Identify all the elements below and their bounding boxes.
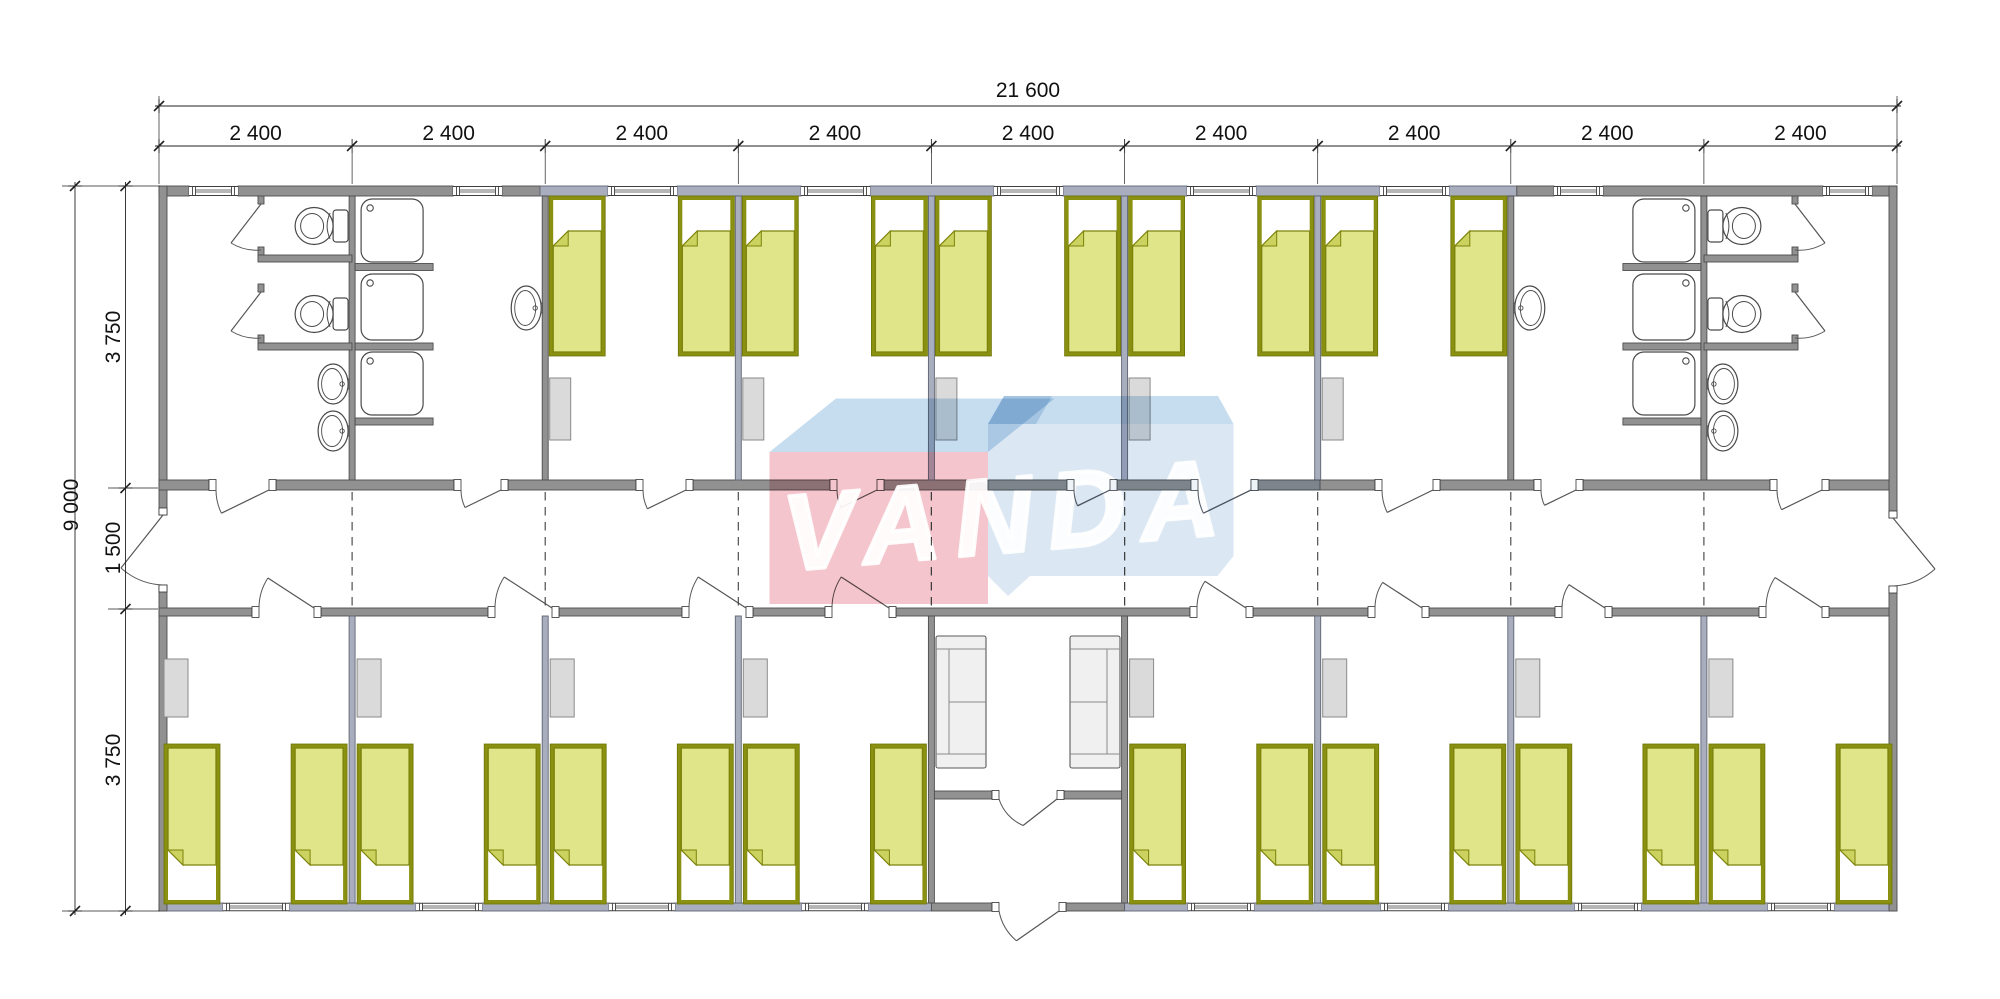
svg-text:3 750: 3 750 — [102, 311, 125, 364]
svg-text:1 500: 1 500 — [102, 522, 125, 575]
svg-text:2 400: 2 400 — [809, 122, 862, 145]
svg-text:3 750: 3 750 — [102, 734, 125, 787]
svg-text:2 400: 2 400 — [1388, 122, 1441, 145]
svg-text:21 600: 21 600 — [996, 79, 1060, 102]
svg-text:2 400: 2 400 — [1002, 122, 1055, 145]
svg-text:2 400: 2 400 — [1774, 122, 1827, 145]
svg-text:2 400: 2 400 — [1195, 122, 1248, 145]
svg-text:9 000: 9 000 — [60, 479, 83, 532]
svg-text:2 400: 2 400 — [1581, 122, 1634, 145]
svg-text:2 400: 2 400 — [616, 122, 669, 145]
svg-text:2 400: 2 400 — [422, 122, 475, 145]
svg-text:2 400: 2 400 — [229, 122, 282, 145]
